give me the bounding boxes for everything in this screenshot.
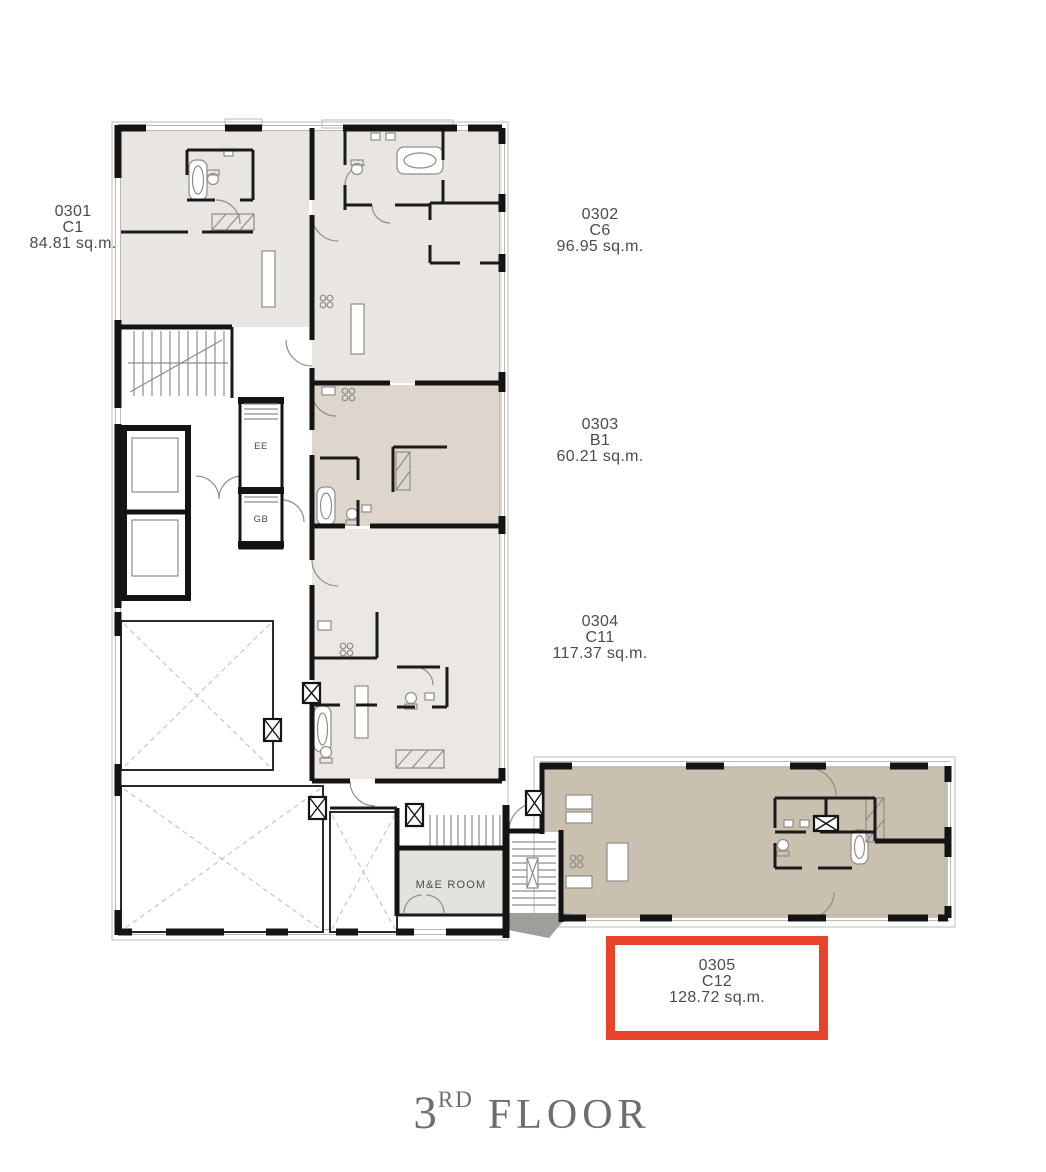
unit-area: 128.72 sq.m. bbox=[615, 990, 819, 1006]
unit-type: B1 bbox=[535, 433, 665, 449]
unit-label-0301[interactable]: 0301 C1 84.81 sq.m. bbox=[8, 204, 138, 252]
unit-id: 0305 bbox=[615, 958, 819, 974]
shaft-label-ee: EE bbox=[254, 441, 268, 452]
me-room-label: M&E ROOM bbox=[416, 879, 487, 891]
floor-number: 3 bbox=[413, 1087, 438, 1139]
floor-word: FLOOR bbox=[488, 1092, 651, 1138]
unit-id: 0304 bbox=[535, 614, 665, 630]
unit-area: 117.37 sq.m. bbox=[535, 646, 665, 662]
floor-ordinal-suffix: RD bbox=[438, 1087, 474, 1112]
unit-type: C1 bbox=[8, 220, 138, 236]
unit-type: C11 bbox=[535, 630, 665, 646]
unit-area: 96.95 sq.m. bbox=[535, 239, 665, 255]
unit-area: 84.81 sq.m. bbox=[8, 236, 138, 252]
shaft-label-gb: GB bbox=[254, 514, 269, 525]
unit-label-0304[interactable]: 0304 C11 117.37 sq.m. bbox=[535, 614, 665, 662]
stairs-top-left bbox=[128, 331, 228, 396]
unit-type: C12 bbox=[615, 974, 819, 990]
elevator-core bbox=[124, 428, 188, 598]
floorplan-page: EE GB M&E ROOM 0301 C1 84.81 sq.m. 0302 … bbox=[0, 0, 1046, 1172]
unit-type: C6 bbox=[535, 223, 665, 239]
unit-id: 0303 bbox=[535, 417, 665, 433]
unit-label-0302[interactable]: 0302 C6 96.95 sq.m. bbox=[535, 207, 665, 255]
service-shafts bbox=[238, 397, 284, 548]
stairs-me bbox=[430, 815, 500, 846]
selected-unit-highlight: 0305 C12 128.72 sq.m. bbox=[606, 936, 828, 1040]
floor-title: 3RDFLOOR bbox=[232, 1086, 832, 1140]
unit-label-0305[interactable]: 0305 C12 128.72 sq.m. bbox=[615, 958, 819, 1006]
floorplan-drawing: EE GB M&E ROOM bbox=[0, 0, 1046, 1172]
unit-id: 0301 bbox=[8, 204, 138, 220]
unit-area: 60.21 sq.m. bbox=[535, 449, 665, 465]
unit-label-0303[interactable]: 0303 B1 60.21 sq.m. bbox=[535, 417, 665, 465]
unit-id: 0302 bbox=[535, 207, 665, 223]
